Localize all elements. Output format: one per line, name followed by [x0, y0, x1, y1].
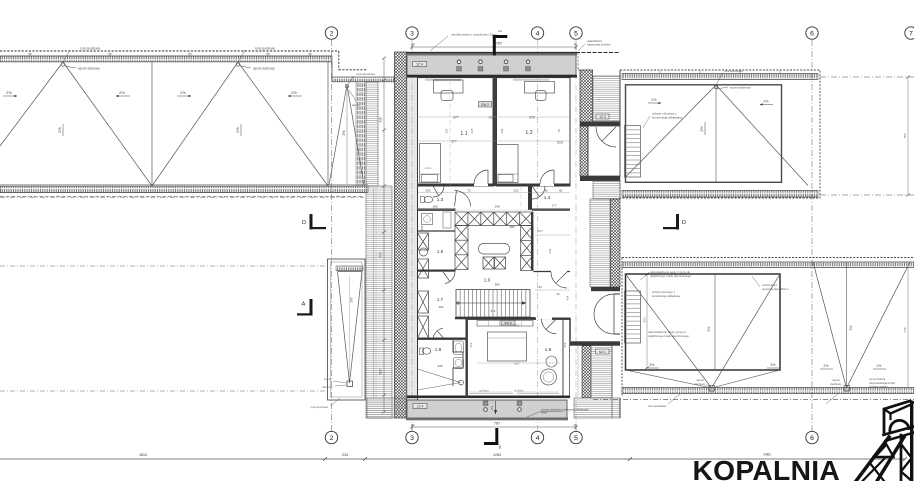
svg-text:767: 767	[496, 42, 502, 46]
svg-text:1Z 3: 1Z 3	[599, 115, 606, 119]
svg-text:2: 2	[330, 30, 334, 37]
svg-text:94: 94	[538, 285, 542, 289]
svg-text:1.1: 1.1	[460, 131, 467, 137]
svg-text:1.9: 1.9	[545, 347, 552, 352]
svg-text:132: 132	[488, 116, 494, 120]
svg-text:rura spustowa: rura spustowa	[356, 72, 375, 76]
svg-text:26: 26	[556, 292, 560, 296]
svg-text:232: 232	[513, 189, 518, 193]
svg-text:SZ 2: SZ 2	[599, 350, 606, 354]
svg-text:235: 235	[500, 128, 504, 133]
svg-text:386: 386	[494, 283, 499, 287]
svg-text:617: 617	[514, 324, 519, 328]
svg-text:konstrukcją odkładaną: konstrukcją odkładaną	[652, 116, 682, 120]
svg-text:wpust dachowy: wpust dachowy	[730, 86, 751, 90]
svg-text:386: 386	[509, 225, 514, 229]
svg-text:81: 81	[559, 189, 563, 193]
svg-text:wpust: wpust	[324, 377, 331, 381]
svg-text:2%: 2%	[57, 127, 62, 133]
svg-text:KOPALNIA: KOPALNIA	[693, 454, 841, 481]
svg-text:177: 177	[537, 229, 542, 233]
svg-text:1283: 1283	[493, 453, 501, 457]
svg-text:2%: 2%	[824, 364, 829, 368]
svg-text:40: 40	[411, 42, 415, 46]
svg-text:177: 177	[551, 204, 556, 208]
svg-text:1.5: 1.5	[437, 249, 444, 254]
svg-text:konstrukcją odkładaną: konstrukcją odkładaną	[652, 294, 680, 298]
svg-text:414: 414	[566, 295, 570, 300]
svg-text:1.3: 1.3	[437, 197, 444, 202]
svg-text:dachowy: dachowy	[322, 385, 333, 389]
svg-text:614: 614	[548, 248, 552, 253]
svg-text:zrzutem wpięty: zrzutem wpięty	[869, 385, 888, 389]
svg-text:4: 4	[536, 435, 540, 442]
svg-text:2%: 2%	[342, 130, 346, 135]
svg-text:180: 180	[432, 205, 437, 209]
svg-text:750: 750	[903, 133, 907, 138]
svg-text:2: 2	[330, 435, 334, 442]
svg-text:schody zewnętrzne pokazane ori: schody zewnętrzne pokazane orientacyjnie	[541, 409, 589, 412]
svg-text:trapezowej obróbka: trapezowej obróbka	[587, 42, 611, 46]
svg-text:377: 377	[453, 116, 459, 120]
svg-text:80: 80	[411, 423, 415, 427]
svg-text:SW 2: SW 2	[481, 103, 489, 107]
svg-text:układ blachy: układ blachy	[587, 39, 603, 43]
svg-text:2%: 2%	[291, 90, 297, 95]
svg-text:318: 318	[379, 117, 383, 123]
svg-text:373: 373	[563, 342, 567, 347]
svg-text:najbliższego rządu deszczowego: najbliższego rządu deszczowego	[650, 274, 691, 278]
svg-text:D: D	[682, 220, 686, 226]
svg-text:645: 645	[379, 252, 383, 258]
svg-text:234: 234	[342, 453, 348, 457]
svg-text:2%: 2%	[877, 364, 882, 368]
svg-text:6: 6	[810, 435, 814, 442]
svg-text:2%: 2%	[235, 127, 240, 133]
svg-text:2%: 2%	[849, 326, 853, 331]
svg-text:tp 6mm: tp 6mm	[479, 389, 489, 393]
svg-text:2%: 2%	[180, 90, 186, 95]
svg-text:rura spustowa: rura spustowa	[255, 47, 275, 51]
svg-text:746: 746	[903, 327, 907, 332]
svg-text:2%: 2%	[6, 90, 12, 95]
svg-text:5: 5	[574, 30, 578, 37]
svg-text:A: A	[302, 302, 306, 308]
svg-text:opuszczeniem 50mm: opuszczeniem 50mm	[762, 287, 789, 291]
svg-text:617: 617	[514, 362, 519, 366]
svg-text:wpust dachowy: wpust dachowy	[78, 67, 100, 71]
svg-text:2%: 2%	[650, 363, 655, 367]
svg-text:263: 263	[643, 317, 647, 322]
svg-text:6: 6	[810, 30, 814, 37]
svg-text:1.4: 1.4	[544, 195, 551, 200]
svg-text:rura spustowa: rura spustowa	[648, 404, 667, 408]
svg-text:dachowy: dachowy	[830, 382, 842, 386]
svg-text:30cm: 30cm	[541, 412, 547, 415]
svg-text:dachowy: dachowy	[694, 382, 706, 386]
svg-text:2%: 2%	[707, 327, 711, 332]
svg-text:1Z 4: 1Z 4	[417, 405, 424, 409]
svg-text:1810: 1810	[139, 453, 147, 457]
svg-text:rura spustowa: rura spustowa	[724, 69, 743, 73]
svg-text:298: 298	[494, 205, 499, 209]
svg-text:2%: 2%	[763, 100, 769, 104]
svg-text:40: 40	[573, 42, 577, 46]
svg-text:2%: 2%	[771, 363, 776, 367]
svg-text:1Z 4: 1Z 4	[416, 63, 423, 67]
svg-text:3: 3	[410, 435, 414, 442]
svg-text:392: 392	[420, 225, 424, 230]
svg-text:88: 88	[498, 445, 502, 449]
svg-text:225: 225	[470, 128, 474, 133]
svg-text:378: 378	[529, 116, 535, 120]
svg-text:4: 4	[536, 30, 540, 37]
svg-text:D: D	[302, 220, 306, 226]
svg-text:1.7: 1.7	[437, 297, 444, 302]
svg-text:190: 190	[439, 305, 444, 309]
svg-text:72: 72	[467, 189, 471, 193]
svg-text:377: 377	[451, 140, 457, 144]
svg-text:obróbka attyki z ociepleniem 2: obróbka attyki z ociepleniem 20cm	[451, 33, 498, 37]
svg-text:373: 373	[469, 342, 473, 347]
svg-text:260: 260	[425, 189, 430, 193]
svg-text:w1: w1	[498, 29, 502, 33]
svg-text:wpust dachowy: wpust dachowy	[253, 67, 275, 71]
svg-text:225: 225	[445, 128, 449, 133]
svg-text:2%: 2%	[119, 90, 125, 95]
svg-text:78: 78	[557, 129, 561, 133]
svg-text:3: 3	[410, 30, 414, 37]
svg-text:1.6: 1.6	[484, 278, 491, 283]
svg-text:236: 236	[437, 364, 442, 368]
svg-text:2%: 2%	[700, 126, 704, 132]
svg-text:SW 2: SW 2	[504, 321, 512, 325]
svg-text:5: 5	[574, 435, 578, 442]
svg-text:rura spustowa: rura spustowa	[80, 47, 100, 51]
svg-text:318: 318	[379, 369, 383, 375]
svg-text:43: 43	[573, 423, 577, 427]
svg-text:najbliższego rządu deszczowego: najbliższego rządu deszczowego	[648, 334, 689, 338]
svg-text:a 4m²: a 4m²	[425, 166, 432, 170]
svg-text:2%: 2%	[651, 98, 657, 102]
svg-text:1.2: 1.2	[525, 130, 532, 136]
svg-text:7: 7	[909, 30, 913, 37]
svg-text:2%: 2%	[350, 298, 354, 303]
svg-text:1.8: 1.8	[435, 347, 442, 352]
svg-text:rura spustowa: rura spustowa	[310, 405, 328, 409]
svg-text:471: 471	[490, 309, 495, 313]
svg-text:767: 767	[494, 422, 500, 426]
svg-text:tp 6mm: tp 6mm	[514, 389, 524, 393]
